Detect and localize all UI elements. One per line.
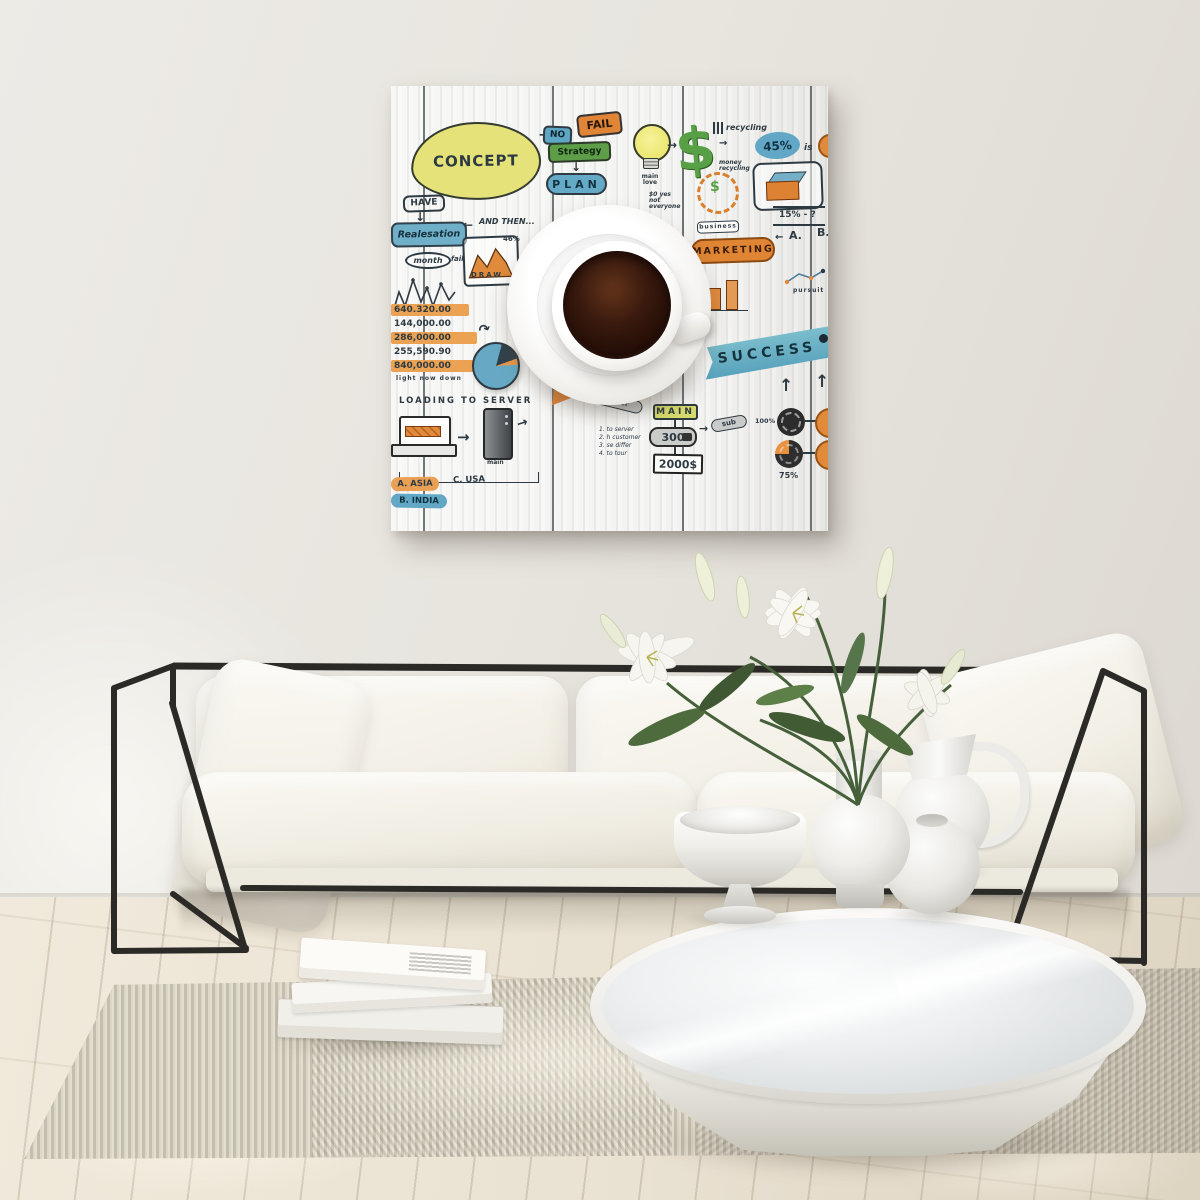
note-line: 2. h customer (599, 434, 641, 442)
pct-75-label: 75% (779, 472, 798, 480)
amounts-list: 640.320.00 144,000.00 286,000.00 255,590… (391, 304, 483, 374)
server-label: main (487, 460, 504, 466)
recycle-dollar: $ (710, 180, 720, 194)
rule-line (773, 206, 825, 208)
coffee-surface (563, 251, 671, 359)
marketing-box: MARKETING (691, 237, 776, 265)
main-love-note: main love (635, 174, 665, 186)
gauge-scribble (778, 409, 805, 436)
table-top (602, 918, 1134, 1094)
bulb-base (643, 158, 659, 169)
pedestal-bowl-foot (704, 906, 776, 924)
no-label: NO (550, 131, 565, 141)
draw-label: DRAW (471, 272, 503, 279)
arrow-down-icon: ↓ (571, 160, 581, 174)
amounts-note: light now down (396, 376, 462, 382)
asia-label: A. ASIA (397, 479, 433, 488)
arrow-left-icon: ← (775, 232, 783, 243)
label-a: A. (789, 230, 802, 241)
n300-toggle (682, 433, 692, 441)
business-label: business (699, 223, 737, 230)
canvas-wall-art: CONCEPT → HAVE ↓ Realesation month fail … (391, 86, 828, 531)
business-tag: business (697, 220, 739, 233)
success-mark (819, 334, 828, 343)
amount-row: 286,000.00 (391, 332, 477, 344)
arrow-up-icon: ↑ (815, 372, 828, 392)
parcel-box (752, 161, 824, 211)
fail-label: FAIL (586, 118, 613, 132)
plan-box: PLAN (546, 173, 607, 195)
amount-row: 255,590.90 (391, 346, 483, 358)
book-text-block (409, 952, 472, 974)
is-label: is (804, 144, 812, 153)
india-label: B. INDIA (399, 496, 439, 505)
gauge-scribble (777, 442, 801, 466)
fail-box: FAIL (576, 111, 623, 139)
arrow-left-icon: ← (463, 218, 473, 232)
not-everyone-note: $0 yes not everyone (649, 192, 679, 210)
realisation-label: Realesation (398, 229, 461, 240)
gauge-75 (775, 440, 803, 468)
gauge-100 (777, 408, 805, 436)
strategy-label: Strategy (557, 147, 601, 158)
have-label: HAVE (410, 199, 437, 209)
usa-label: C. USA (453, 475, 485, 485)
arrow-up-icon: ↑ (779, 376, 793, 396)
light-bulb-icon (633, 124, 671, 162)
bar (726, 280, 738, 310)
living-room-scene: CONCEPT → HAVE ↓ Realesation month fail … (0, 0, 1200, 1200)
bars-icon (713, 122, 723, 134)
label-b: B. (817, 227, 828, 238)
amount-row: 840,000.00 (391, 360, 483, 372)
parcel-front (766, 181, 800, 201)
lily-bouquet (555, 535, 985, 825)
amount-row: 144,000.00 (391, 318, 483, 330)
lily-blossom (616, 628, 697, 686)
connector-line (803, 452, 815, 454)
pursuit-chart (785, 268, 825, 286)
amount-row: 640.320.00 (391, 304, 469, 316)
fail-note: fail (451, 256, 464, 263)
india-tag: B. INDIA (391, 494, 447, 509)
plan-label: PLAN (552, 179, 601, 190)
and-then-label: AND THEN... (479, 218, 535, 226)
arrow-right-icon: → (457, 428, 470, 446)
dollar-sign: $ (673, 118, 718, 179)
concept-label: CONCEPT (433, 153, 519, 169)
note-line: 4. to tour (599, 450, 641, 458)
pursuit-label: pursuit (793, 288, 824, 294)
marketing-label: MARKETING (692, 244, 774, 256)
price-box: 2000$ (653, 454, 703, 475)
asia-tag: A. ASIA (391, 477, 439, 492)
pct-46-label: 46% (503, 236, 520, 243)
pct-45-label: 45% (763, 139, 793, 153)
arrow-right-icon: → (719, 138, 727, 149)
laptop-base (391, 444, 457, 457)
laptop-screen-bar (405, 426, 441, 437)
recycling-label: recycling (726, 124, 767, 132)
pct-100-label: 100% (755, 418, 775, 425)
price-label: 2000$ (659, 458, 697, 470)
realisation-highlight: Realesation (391, 221, 467, 247)
flower-vase-foot (836, 884, 884, 908)
note-line: 3. se differ (599, 442, 641, 450)
pct-15-label: 15% - ? (779, 211, 816, 220)
